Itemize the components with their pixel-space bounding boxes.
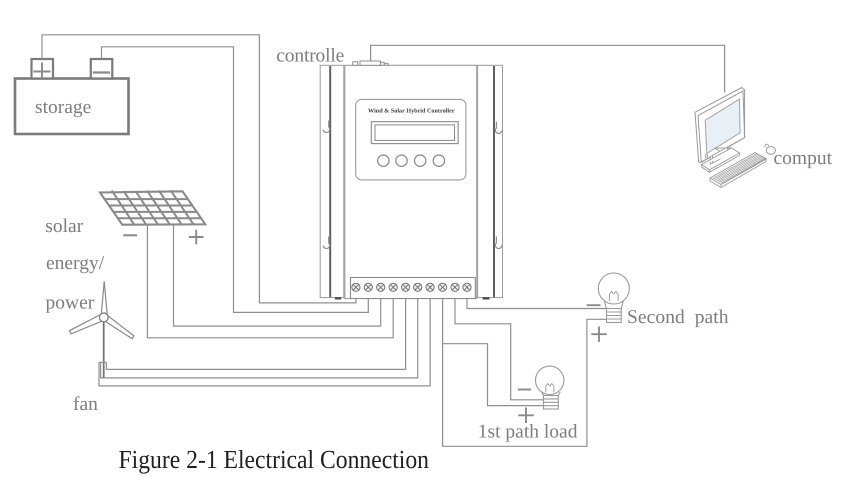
svg-text:fan: fan xyxy=(73,394,98,415)
svg-text:power: power xyxy=(46,293,95,314)
svg-text:comput: comput xyxy=(774,148,833,169)
svg-text:controlle: controlle xyxy=(276,46,344,67)
svg-text:Figure 2-1 Electrical Connecti: Figure 2-1 Electrical Connection xyxy=(119,445,430,474)
svg-text:Second path: Second path xyxy=(627,307,729,328)
svg-text:storage: storage xyxy=(35,97,91,118)
svg-text:Wind & Solar Hybrid Controller: Wind & Solar Hybrid Controller xyxy=(368,108,455,115)
svg-text:solar: solar xyxy=(45,216,83,237)
svg-text:1st path load: 1st path load xyxy=(478,422,578,443)
svg-text:energy/: energy/ xyxy=(46,253,105,274)
